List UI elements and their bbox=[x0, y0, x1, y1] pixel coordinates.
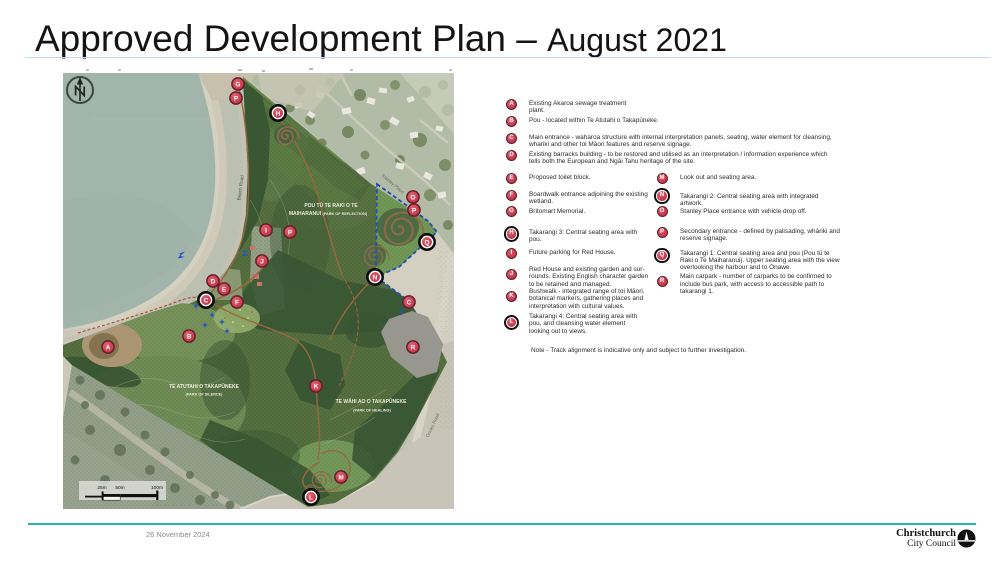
svg-text:D: D bbox=[211, 278, 216, 285]
svg-text:F: F bbox=[235, 299, 239, 306]
svg-text:TE WĀHI AO O TAKAPŪNEKE: TE WĀHI AO O TAKAPŪNEKE bbox=[336, 398, 407, 405]
svg-text:G: G bbox=[236, 81, 241, 88]
svg-text:(PARK OF SILENCE): (PARK OF SILENCE) bbox=[186, 393, 224, 397]
svg-text:C: C bbox=[204, 297, 209, 304]
svg-text:E: E bbox=[222, 286, 227, 293]
svg-text:P: P bbox=[288, 229, 293, 236]
svg-text:M: M bbox=[338, 474, 343, 481]
svg-text:B: B bbox=[187, 333, 192, 340]
svg-text:P: P bbox=[234, 95, 239, 102]
svg-text:50m: 50m bbox=[115, 485, 124, 491]
svg-text:I: I bbox=[265, 227, 267, 234]
svg-text:25m: 25m bbox=[97, 485, 106, 491]
svg-text:100m: 100m bbox=[151, 485, 163, 491]
svg-text:TE ATUTAHI O TAKAPŪNEKE: TE ATUTAHI O TAKAPŪNEKE bbox=[169, 383, 239, 390]
svg-text:C: C bbox=[407, 299, 412, 306]
svg-text:Q: Q bbox=[425, 239, 430, 246]
svg-text:R: R bbox=[411, 344, 416, 351]
svg-text:A: A bbox=[106, 344, 111, 351]
svg-text:K: K bbox=[314, 383, 319, 390]
svg-text:J: J bbox=[260, 258, 264, 265]
svg-text:N: N bbox=[373, 274, 378, 281]
svg-text:O: O bbox=[411, 194, 416, 201]
svg-text:H: H bbox=[276, 110, 281, 117]
svg-text:POU TŪ TE RAKI O TE: POU TŪ TE RAKI O TE bbox=[304, 202, 358, 209]
svg-text:L: L bbox=[309, 494, 313, 501]
svg-text:P: P bbox=[412, 207, 417, 214]
svg-text:(PARK OF HEALING): (PARK OF HEALING) bbox=[353, 409, 391, 413]
